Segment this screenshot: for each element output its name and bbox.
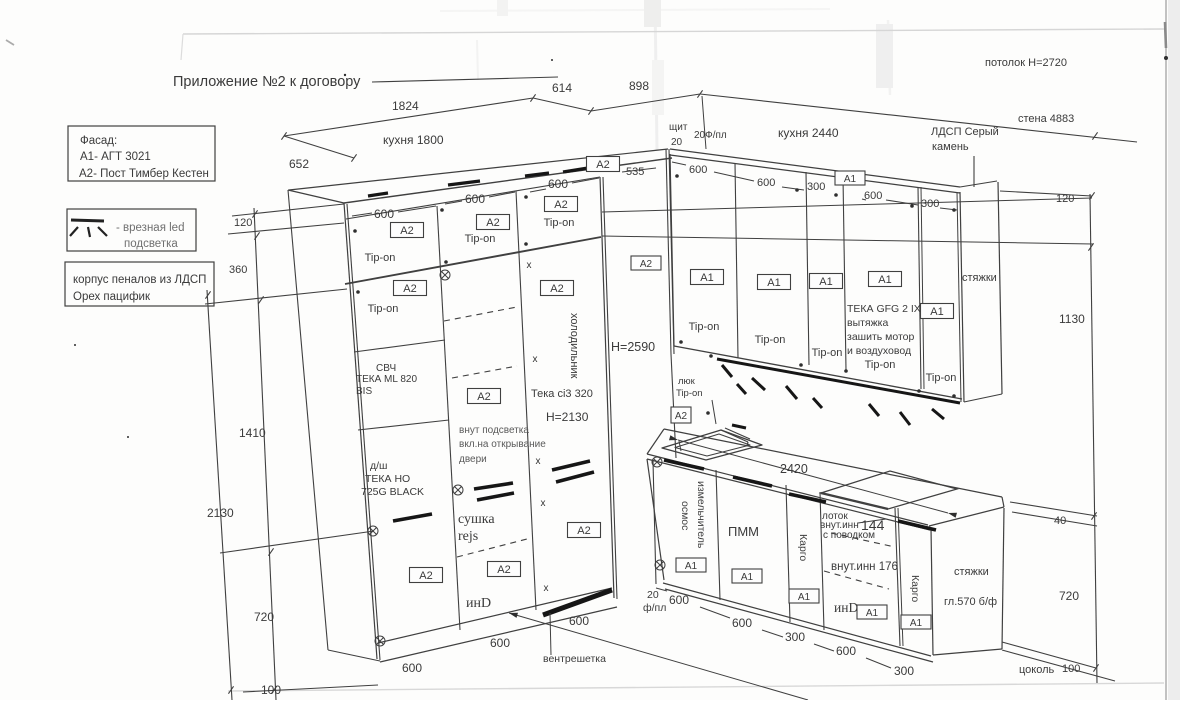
svg-text:Tip-on: Tip-on [865,359,896,371]
svg-text:720: 720 [1059,589,1079,603]
svg-text:д/ш: д/ш [370,460,387,472]
svg-text:Приложение №2 к договору: Приложение №2 к договору [173,74,361,90]
svg-text:с поводком: с поводком [823,530,875,541]
svg-text:А1: А1 [741,572,754,583]
svg-text:600: 600 [864,190,882,202]
svg-text:СВЧ: СВЧ [376,363,396,374]
svg-text:А1: А1 [685,561,698,572]
svg-text:вентрешетка: вентрешетка [543,653,606,665]
svg-text:гл.570 б/ф: гл.570 б/ф [944,596,997,608]
svg-text:Тека ci3 320: Тека ci3 320 [531,388,593,400]
svg-text:600: 600 [757,177,775,189]
svg-text:720: 720 [254,610,274,624]
svg-text:ТЕКА НО: ТЕКА НО [365,473,410,485]
svg-text:2130: 2130 [207,506,234,520]
svg-text:стена 4883: стена 4883 [1018,113,1074,125]
svg-text:А2: А2 [403,283,416,295]
svg-text:А2: А2 [640,259,653,270]
svg-text:ТЕКА GFG 2 IX: ТЕКА GFG 2 IX [847,303,921,315]
svg-text:100: 100 [261,683,281,697]
svg-text:300: 300 [785,630,805,644]
svg-text:360: 360 [229,264,247,276]
svg-text:535: 535 [626,166,644,178]
svg-text:Н=2590: Н=2590 [611,340,655,354]
svg-text:корпус пеналов из ЛДСП: корпус пеналов из ЛДСП [73,274,206,286]
svg-text:А2: А2 [400,225,413,237]
svg-text:725G BLACK: 725G BLACK [361,486,424,498]
svg-text:А1: А1 [819,276,832,288]
svg-text:40: 40 [1054,515,1066,527]
svg-text:А1: А1 [700,272,713,284]
svg-text:сушка: сушка [458,512,495,527]
svg-text:120: 120 [1056,193,1074,205]
svg-text:x: x [536,456,541,467]
svg-text:300: 300 [894,664,914,678]
svg-text:щит: щит [669,122,688,133]
svg-text:600: 600 [569,614,589,628]
svg-text:А1: А1 [844,174,857,185]
svg-text:Н=2130: Н=2130 [546,410,589,424]
svg-text:20: 20 [671,137,683,148]
svg-text:x: x [533,354,538,365]
svg-text:Tip-on: Tip-on [368,303,399,315]
svg-text:600: 600 [402,661,422,675]
svg-text:подсветка: подсветка [124,238,178,250]
svg-text:А2: А2 [497,564,510,576]
svg-text:внут подсветка: внут подсветка [459,425,529,436]
svg-text:Tip-on: Tip-on [465,233,496,245]
svg-text:Tip-on: Tip-on [755,334,786,346]
svg-text:- врезная led: - врезная led [116,222,184,234]
svg-text:А2- Пост Тимбер Кестен: А2- Пост Тимбер Кестен [79,168,209,180]
svg-text:А1: А1 [798,592,811,603]
svg-text:А2: А2 [675,411,688,422]
svg-text:600: 600 [669,593,689,607]
svg-text:ТЕКА ML 820: ТЕКА ML 820 [356,374,417,385]
svg-text:ПММ: ПММ [728,524,759,539]
svg-text:ЛДСП Серый: ЛДСП Серый [931,126,999,138]
svg-text:300: 300 [921,198,939,210]
svg-text:600: 600 [465,192,485,206]
svg-text:600: 600 [689,164,707,176]
svg-text:двери: двери [459,454,487,465]
svg-text:2420: 2420 [780,462,808,476]
svg-text:камень: камень [932,141,969,153]
svg-text:внут.инн 176: внут.инн 176 [831,561,898,573]
svg-text:А1: А1 [910,618,923,629]
svg-text:x: x [527,260,532,271]
svg-text:Tip-on: Tip-on [812,347,843,359]
svg-text:люк: люк [678,376,696,387]
svg-text:600: 600 [548,177,568,191]
svg-text:BIS: BIS [356,386,372,397]
svg-text:x: x [541,498,546,509]
svg-text:кухня 1800: кухня 1800 [383,133,444,147]
svg-text:холодильник: холодильник [568,313,580,379]
svg-text:А1: А1 [878,274,891,286]
svg-text:измельчитель: измельчитель [695,481,707,549]
svg-text:А1- АГТ 3021: А1- АГТ 3021 [80,151,151,163]
svg-text:300: 300 [807,181,825,193]
svg-text:Фасад:: Фасад: [80,135,117,147]
svg-text:кухня 2440: кухня 2440 [778,126,839,140]
svg-text:rejs: rejs [458,529,478,544]
svg-text:А1: А1 [866,608,879,619]
svg-text:вкл.на открывание: вкл.на открывание [459,439,546,450]
svg-text:20: 20 [647,589,659,601]
svg-text:Tip-on: Tip-on [689,321,720,333]
svg-text:А2: А2 [596,159,609,171]
svg-text:А2: А2 [550,283,563,295]
svg-text:цоколь: цоколь [1019,664,1055,676]
svg-text:x: x [544,583,549,594]
svg-text:600: 600 [836,644,856,658]
svg-text:стяжки: стяжки [962,272,997,284]
svg-text:Карго: Карго [797,534,809,561]
svg-text:898: 898 [629,79,649,93]
svg-text:вытяжка: вытяжка [847,317,888,329]
svg-text:А2: А2 [486,217,499,229]
svg-text:1410: 1410 [239,426,266,440]
svg-text:Tip-on: Tip-on [365,252,396,264]
svg-text:Tip-on: Tip-on [676,388,703,399]
svg-text:1130: 1130 [1059,312,1085,326]
svg-text:614: 614 [552,81,572,95]
svg-text:А2: А2 [577,525,590,537]
svg-text:А2: А2 [477,391,490,403]
svg-text:600: 600 [490,636,510,650]
svg-text:стяжки: стяжки [954,566,989,578]
svg-text:1824: 1824 [392,99,419,113]
svg-text:Карго: Карго [909,575,921,602]
svg-text:Tip-on: Tip-on [926,372,957,384]
svg-text:А2: А2 [419,570,432,582]
svg-text:20Ф/пл: 20Ф/пл [694,130,727,141]
svg-text:652: 652 [289,157,309,171]
svg-text:А2: А2 [554,199,567,211]
svg-text:Tip-on: Tip-on [544,217,575,229]
svg-text:инD: инD [834,600,858,615]
svg-text:инD: инD [466,596,491,611]
svg-text:600: 600 [732,616,752,630]
svg-text:и воздуховод: и воздуховод [847,345,911,357]
svg-text:ф/пл: ф/пл [643,602,666,614]
svg-text:А1: А1 [767,277,780,289]
svg-text:А1: А1 [930,306,943,318]
svg-text:потолок Н=2720: потолок Н=2720 [985,57,1067,69]
svg-text:зашить мотор: зашить мотор [847,331,914,343]
svg-text:Орех пацифик: Орех пацифик [73,291,151,303]
svg-text:осмос: осмос [679,501,691,530]
svg-text:600: 600 [374,207,394,221]
svg-text:120: 120 [234,217,252,229]
